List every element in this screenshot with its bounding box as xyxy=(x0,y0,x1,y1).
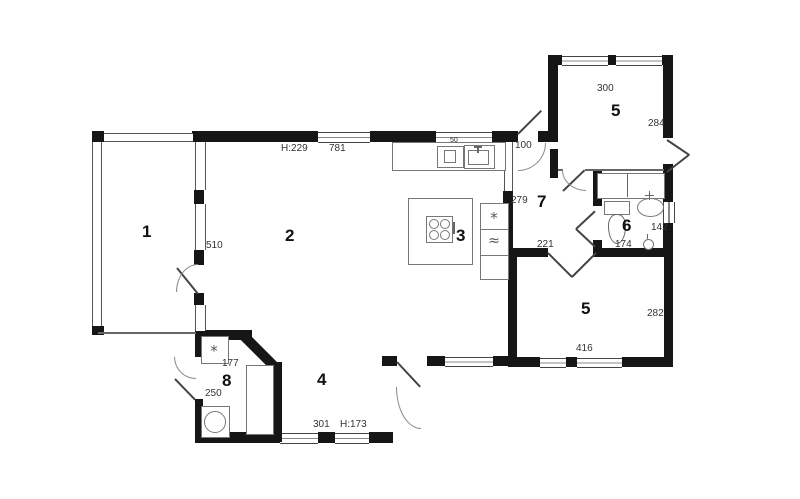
dim-label-250: 250 xyxy=(205,388,222,399)
exterior-wall xyxy=(548,55,558,142)
small-appliance-icon xyxy=(444,150,456,163)
door-leaf xyxy=(571,252,596,277)
dim-label-416: 416 xyxy=(576,343,593,354)
interior-wall xyxy=(508,248,517,360)
dim-label-510: 510 xyxy=(206,240,223,251)
dim-label-301: 301 xyxy=(313,419,330,430)
bath-cabinet xyxy=(597,173,665,199)
door-swing xyxy=(176,264,198,292)
room-label-5-top: 5 xyxy=(611,101,620,121)
window xyxy=(445,357,493,367)
glazed-wall xyxy=(195,204,206,250)
room-label-4: 4 xyxy=(317,370,326,390)
exterior-wall xyxy=(566,357,577,367)
fan-icon: * xyxy=(207,344,221,359)
dim-label-221: 221 xyxy=(537,239,554,250)
wardrobe xyxy=(246,365,274,435)
room-label-1: 1 xyxy=(142,222,151,242)
window xyxy=(335,433,369,444)
dim-label-300: 300 xyxy=(597,83,614,94)
room-label-6: 6 xyxy=(622,216,631,236)
burner-icon xyxy=(440,219,450,229)
exterior-wall xyxy=(664,257,673,367)
cabinet-divider xyxy=(627,174,628,197)
dim-label-174: 174 xyxy=(615,239,632,250)
floor-plan: * ≈ * 1 2 3 4 5 5 6 7 8 H:229 781 50 100… xyxy=(0,0,800,499)
room-label-8: 8 xyxy=(222,371,231,391)
exterior-wall xyxy=(508,357,540,367)
exterior-wall xyxy=(493,356,508,366)
waves-icon: ≈ xyxy=(486,234,502,248)
door-leaf xyxy=(575,211,595,230)
shower-drain-icon xyxy=(643,239,654,250)
window xyxy=(540,358,566,368)
washbasin xyxy=(637,198,664,217)
door-swing xyxy=(396,387,421,429)
dim-label-282: 282 xyxy=(647,308,664,319)
burner-icon xyxy=(440,230,450,240)
door-leaf xyxy=(666,139,690,156)
dim-label-284: 284 xyxy=(648,118,665,129)
window xyxy=(616,56,662,66)
window xyxy=(318,132,370,143)
floor-line xyxy=(98,332,196,334)
washer-drum-icon xyxy=(204,411,226,433)
door-swing xyxy=(174,357,196,379)
wall-post xyxy=(92,131,104,142)
glazed-wall xyxy=(195,305,206,331)
exterior-wall xyxy=(622,357,673,367)
room-label-5-bottom: 5 xyxy=(581,299,590,319)
faucet-icon xyxy=(477,146,479,153)
door-leaf xyxy=(174,378,196,400)
interior-wall xyxy=(550,149,558,178)
wall-post xyxy=(194,190,204,204)
wall-post xyxy=(194,293,204,305)
dim-label-100: 100 xyxy=(515,140,532,151)
glazed-wall xyxy=(195,142,206,190)
exterior-wall xyxy=(318,432,335,443)
shower-drain-icon xyxy=(647,234,648,239)
basin-faucet-icon xyxy=(649,191,650,200)
cabinet xyxy=(480,255,509,280)
door-leaf xyxy=(575,228,595,247)
dim-label-781: 781 xyxy=(329,143,346,154)
room-label-3: 3 xyxy=(456,226,465,246)
wall-post xyxy=(194,250,204,265)
window xyxy=(562,56,608,66)
window xyxy=(280,433,318,444)
dim-label-h173: H:173 xyxy=(340,419,367,430)
dim-label-ceiling: H:229 xyxy=(281,143,308,154)
room-label-2: 2 xyxy=(285,226,294,246)
glazed-wall xyxy=(104,133,193,142)
burner-icon xyxy=(429,219,439,229)
dim-label-279: 279 xyxy=(511,195,528,206)
exterior-wall xyxy=(370,131,436,142)
exterior-wall xyxy=(608,55,616,65)
exterior-wall xyxy=(427,356,445,366)
burner-icon xyxy=(429,230,439,240)
room-label-7: 7 xyxy=(537,192,546,212)
exterior-wall xyxy=(369,432,393,443)
exterior-wall xyxy=(192,131,318,142)
door-leaf xyxy=(396,361,421,387)
fan-icon: * xyxy=(487,211,501,226)
window xyxy=(577,358,622,368)
glazed-wall xyxy=(92,142,102,326)
door-leaf xyxy=(547,252,572,277)
window xyxy=(663,202,675,223)
exterior-wall xyxy=(382,356,397,366)
toilet-tank xyxy=(604,201,630,215)
dim-label-50: 50 xyxy=(450,137,458,144)
dim-label-142: 142 xyxy=(651,222,668,233)
cooktop-handle xyxy=(453,222,455,234)
interior-wall xyxy=(597,248,673,257)
partition-line xyxy=(585,169,664,171)
dim-label-177: 177 xyxy=(222,358,239,369)
interior-wall xyxy=(273,362,282,442)
